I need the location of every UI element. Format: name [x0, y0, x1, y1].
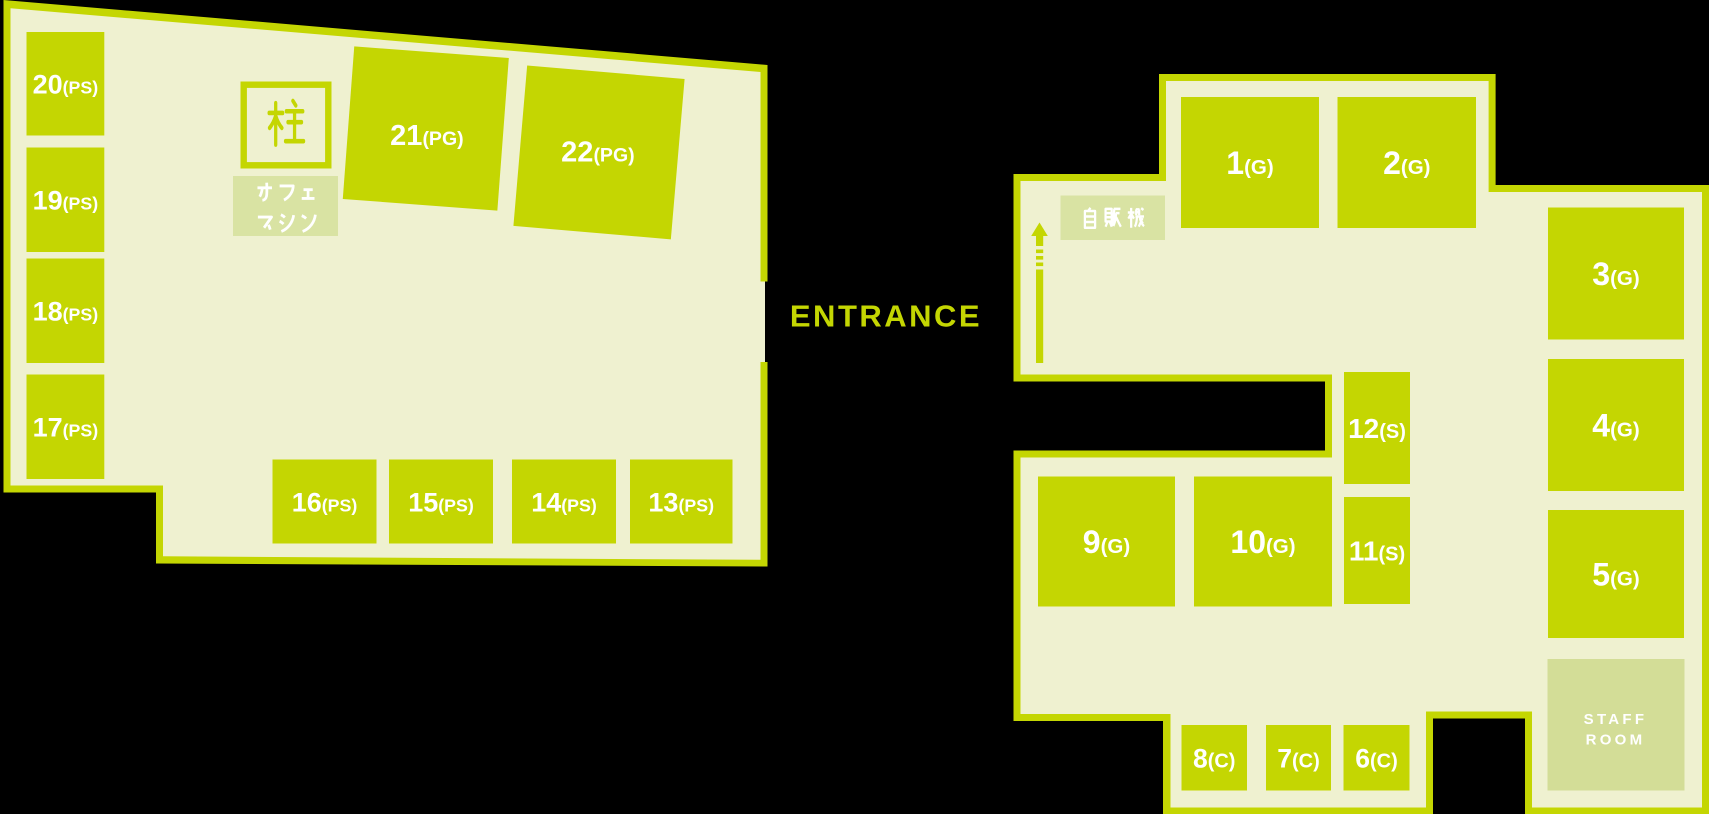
svg-text:ENTRANCE: ENTRANCE — [790, 299, 982, 334]
svg-text:ROOM: ROOM — [1586, 731, 1646, 748]
svg-text:STAFF: STAFF — [1584, 711, 1648, 728]
